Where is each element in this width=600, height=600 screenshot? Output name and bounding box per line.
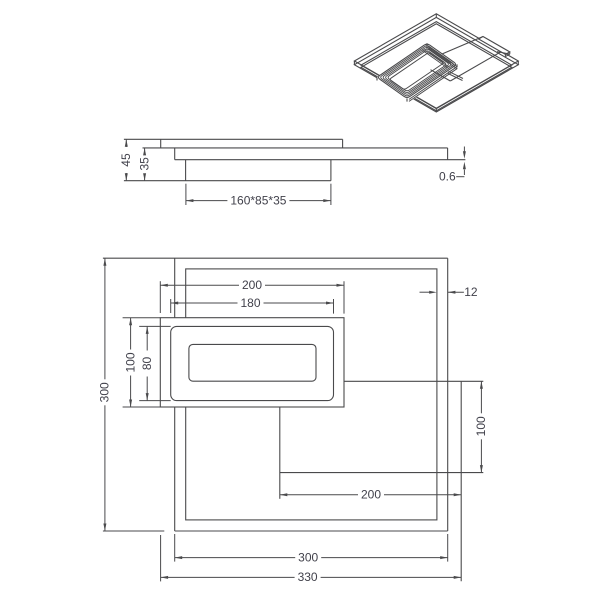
svg-text:200: 200 (361, 488, 381, 502)
svg-text:0.6: 0.6 (439, 170, 456, 184)
svg-text:300: 300 (298, 550, 318, 564)
svg-text:12: 12 (464, 285, 478, 299)
svg-text:160*85*35: 160*85*35 (230, 193, 286, 207)
svg-text:180: 180 (240, 296, 260, 310)
svg-text:300: 300 (98, 382, 112, 402)
svg-text:35: 35 (137, 157, 151, 171)
svg-text:45: 45 (119, 153, 133, 167)
svg-text:200: 200 (242, 278, 262, 292)
svg-text:100: 100 (474, 416, 488, 436)
svg-text:100: 100 (123, 352, 137, 372)
svg-text:80: 80 (140, 357, 154, 371)
svg-text:330: 330 (298, 570, 318, 584)
